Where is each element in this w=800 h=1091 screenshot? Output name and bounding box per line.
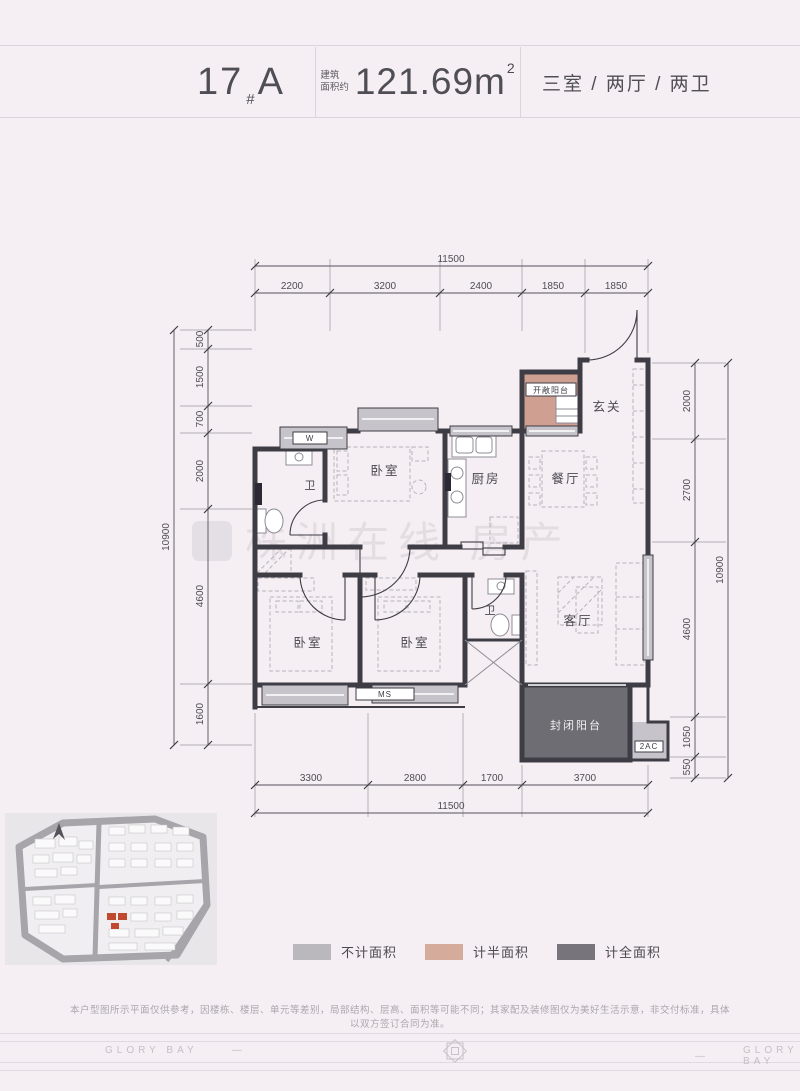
legend-item-no-area: 不计面积: [293, 942, 397, 961]
watermark: 株洲在线 房产: [192, 519, 572, 566]
closed-balcony-label: 封闭阳台: [550, 718, 602, 732]
kitchen-label: 厨房: [471, 471, 500, 486]
footer-rule-1: [0, 1033, 800, 1034]
bedroom-left-label: 卧室: [293, 635, 322, 650]
dim-left-total: 10900: [161, 523, 172, 551]
legend-item-half-area: 计半面积: [425, 942, 529, 961]
unit-title: 17 # A: [0, 47, 315, 117]
brand-right-dash: —: [695, 1051, 709, 1062]
dim-left-seg-0: 500: [195, 330, 206, 347]
flyer-page: 17 # A 建筑 面积约 121.69 m 2 三室 / 两厅 / 两卫 株洲…: [0, 0, 800, 1091]
layout-text: 三室 / 两厅 / 两卫: [542, 69, 712, 96]
dim-right-total: 10900: [715, 556, 726, 584]
area-value: 121.69: [355, 61, 474, 103]
bedroom-mid-label: 卧室: [400, 635, 429, 650]
dim-top-seg-4: 1850: [605, 281, 628, 292]
unit-letter: A: [258, 61, 285, 104]
disclaimer-text: 本户型图所示平面仅供参考，因楼栋、楼层、单元等差别，局部结构、层高、面积等可能不…: [70, 1002, 730, 1030]
dim-right-seg-2: 4600: [682, 617, 693, 640]
area-block: 建筑 面积约 121.69 m 2: [315, 47, 520, 117]
legend-swatch-no-area: [293, 944, 331, 960]
open-balcony-label: 开敞阳台: [533, 385, 569, 395]
area-prefix-line1: 建筑: [320, 70, 339, 81]
brand-left: GLORY BAY —: [105, 1045, 246, 1056]
footer-rule-4: [0, 1070, 800, 1071]
brand-left-text: GLORY BAY: [105, 1045, 198, 1056]
header-bottom-rule: [0, 117, 800, 118]
legend-swatch-full-area: [557, 944, 595, 960]
brand-right-text: GLORY BAY: [743, 1045, 800, 1067]
dim-left-seg-4: 4600: [195, 584, 206, 607]
washer-tag: W: [306, 434, 315, 443]
dim-top-seg-1: 3200: [374, 281, 397, 292]
area-prefix-line2: 面积约: [320, 82, 349, 93]
footer-rule-3: [0, 1062, 800, 1063]
dim-left-seg-5: 1600: [195, 702, 206, 725]
dim-top-seg-0: 2200: [281, 281, 304, 292]
ac-tag: 2AC: [640, 742, 659, 751]
bedroom-top-label: 卧室: [370, 463, 399, 478]
area-exponent: 2: [507, 60, 515, 76]
dim-right-seg-3: 1050: [682, 725, 693, 748]
hash-separator: #: [246, 91, 254, 108]
dim-bottom-seg-0: 3300: [300, 773, 323, 784]
dim-left-seg-1: 1500: [195, 365, 206, 388]
legend-label-no-area: 不计面积: [341, 942, 397, 961]
dim-bottom-seg-2: 1700: [481, 773, 504, 784]
dim-bottom-total: 11500: [437, 801, 465, 812]
dim-top-total: 11500: [437, 254, 465, 265]
block-number: 17: [197, 61, 243, 104]
legend-label-half-area: 计半面积: [473, 942, 529, 961]
dim-right-seg-1: 2700: [682, 478, 693, 501]
top-rule: [0, 45, 800, 46]
dim-bottom-seg-1: 2800: [404, 773, 427, 784]
bath-bottom-label: 卫: [485, 605, 496, 617]
dim-top-seg-3: 1850: [542, 281, 565, 292]
legend: 不计面积 计半面积 计全面积: [293, 942, 661, 961]
bath-top-label: 卫: [305, 480, 316, 492]
area-prefix: 建筑 面积约: [320, 70, 349, 94]
header: 17 # A 建筑 面积约 121.69 m 2 三室 / 两厅 / 两卫: [0, 47, 800, 117]
brand-right: — GLORY BAY: [695, 1045, 800, 1067]
floor-plan: 株洲在线 房产: [150, 235, 750, 847]
foyer-label: 玄关: [592, 399, 621, 414]
area-unit: m: [474, 61, 506, 103]
layout-summary: 三室 / 两厅 / 两卫: [520, 47, 800, 117]
dining-label: 餐厅: [551, 471, 580, 486]
brand-left-dash: —: [232, 1045, 246, 1056]
dim-left-seg-3: 2000: [195, 459, 206, 482]
dim-right-seg-0: 2000: [682, 389, 693, 412]
site-map: [5, 813, 217, 965]
legend-item-full-area: 计全面积: [557, 942, 661, 961]
dim-right-seg-4: 550: [682, 758, 693, 775]
living-label: 客厅: [563, 613, 592, 628]
bay-tag: MS: [378, 690, 392, 699]
dim-bottom-seg-3: 3700: [574, 773, 597, 784]
legend-label-full-area: 计全面积: [605, 942, 661, 961]
dim-left-seg-2: 700: [195, 410, 206, 427]
compass-star-icon: [437, 1033, 473, 1069]
footer-rule-2: [0, 1041, 800, 1042]
dim-top-seg-2: 2400: [470, 281, 493, 292]
legend-swatch-half-area: [425, 944, 463, 960]
